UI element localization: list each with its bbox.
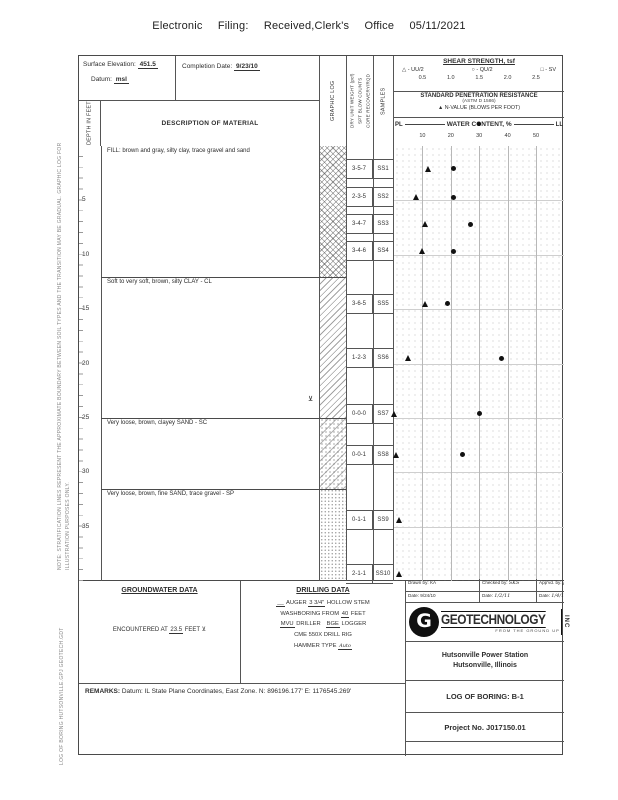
scanned-boring-log-page: Electronic Filing: Received,Clerk's Offi… bbox=[0, 0, 618, 800]
shear-strength-legend: △ - UU/2 ○ - QU/2 □ - SV bbox=[394, 65, 564, 73]
checked-by-cell: Checked by: SKS bbox=[479, 579, 536, 591]
graphic-pattern-fill bbox=[320, 146, 346, 277]
drilling-lines: __ AUGER 3 3/4" HOLLOW STEM WASHBORING F… bbox=[241, 598, 405, 652]
samples-column-label: SAMPLES bbox=[374, 56, 393, 146]
remarks-box: REMARKS: Datum: IL State Plane Coordinat… bbox=[79, 684, 406, 756]
dry-unit-line-3: CORE RECOVERY/RQD bbox=[364, 58, 372, 144]
sample-row: 3-4-6SS4 bbox=[346, 241, 393, 261]
depth-column-label: DEPTH IN FEET bbox=[79, 101, 100, 146]
n-value-marker bbox=[396, 571, 402, 577]
approved-by-cell: App'vd. by: JW bbox=[536, 579, 564, 591]
depth-tick: 20 bbox=[82, 360, 89, 367]
water-content-marker bbox=[451, 166, 456, 171]
dry-unit-line-2: SPT BLOW COUNTS bbox=[356, 58, 364, 144]
chart-gridline-v bbox=[508, 146, 509, 581]
sample-id: SS1 bbox=[373, 160, 393, 178]
shear-scale-label: 1.5 bbox=[475, 75, 483, 81]
n-value-marker bbox=[419, 248, 425, 254]
surface-elevation-line: Surface Elevation: 451.5 bbox=[83, 61, 175, 68]
legend-uu: △ - UU/2 bbox=[402, 67, 424, 73]
sheet-footer: GROUNDWATER DATA ENCOUNTERED AT 23.5 FEE… bbox=[79, 581, 564, 756]
dry-unit-column-header: DRY UNIT WEIGHT (pcf) SPT BLOW COUNTS CO… bbox=[346, 56, 373, 146]
graphic-pattern-sc bbox=[320, 418, 346, 489]
water-scale-label: 40 bbox=[505, 133, 511, 139]
blow-counts: 0-0-1 bbox=[346, 446, 373, 464]
spr-legend: ▲ N-VALUE (BLOWS PER FOOT) bbox=[394, 104, 564, 111]
depth-tick: 25 bbox=[82, 414, 89, 421]
datum-line: Datum: msl bbox=[83, 76, 175, 83]
completion-date-value: 9/23/10 bbox=[234, 63, 260, 71]
chart-plot-area bbox=[393, 146, 564, 581]
groundwater-depth-value: 23.5 bbox=[169, 627, 183, 634]
sample-row: 0-1-1SS9 bbox=[346, 510, 393, 530]
samples-column-header: SAMPLES bbox=[373, 56, 393, 146]
graphic-log-label: GRAPHIC LOG bbox=[320, 56, 346, 146]
drilling-washboring-line: WASHBORING FROM 40 FEET bbox=[241, 609, 405, 620]
water-table-icon: ⊻ bbox=[202, 627, 206, 633]
stratum-boundary-line bbox=[101, 418, 346, 419]
chart-gridline-v bbox=[479, 146, 480, 581]
boring-log-sheet: Surface Elevation: 451.5 Datum: msl Comp… bbox=[78, 55, 563, 755]
blow-counts: 0-1-1 bbox=[346, 511, 373, 529]
drilling-data-box: DRILLING DATA __ AUGER 3 3/4" HOLLOW STE… bbox=[241, 581, 406, 684]
n-value-marker bbox=[405, 355, 411, 361]
depth-column: 5101520253035 bbox=[79, 146, 101, 581]
n-value-marker bbox=[422, 301, 428, 307]
filled-triangle-icon: ▲ bbox=[438, 105, 443, 111]
shear-strength-header: SHEAR STRENGTH, tsf △ - UU/2 ○ - QU/2 □ … bbox=[394, 56, 564, 92]
water-content-marker bbox=[445, 301, 450, 306]
depth-tick: 5 bbox=[82, 196, 86, 203]
blow-counts: 3-4-7 bbox=[346, 215, 373, 233]
water-content-marker bbox=[451, 249, 456, 254]
boring-id: B-1 bbox=[512, 692, 524, 701]
drilling-hammer-line: HAMMER TYPE Auto bbox=[241, 641, 405, 652]
water-scale-label: 30 bbox=[476, 133, 482, 139]
surface-elevation-box: Surface Elevation: 451.5 Datum: msl bbox=[79, 56, 176, 101]
description-column-header: DESCRIPTION OF MATERIAL bbox=[101, 101, 319, 146]
sample-row: 0-0-0SS7 bbox=[346, 404, 393, 424]
depth-tick: 15 bbox=[82, 305, 89, 312]
project-number-box: Project No. J017150.01 bbox=[406, 713, 564, 742]
logo-text: GEOTECHNOLOGY FROM THE GROUND UP bbox=[441, 611, 560, 634]
sample-row: 3-5-7SS1 bbox=[346, 159, 393, 179]
spr-header: STANDARD PENETRATION RESISTANCE (ASTM D … bbox=[394, 92, 564, 118]
samples-area: 3-5-7SS12-3-5SS23-4-7SS33-4-6SS43-6-5SS5… bbox=[346, 146, 393, 581]
chart-gridline-v bbox=[422, 146, 423, 581]
stratum-description: FILL: brown and gray, silty clay, trace … bbox=[107, 148, 315, 155]
triangle-outline-icon: △ bbox=[402, 67, 406, 73]
site-line-2: Hutsonville, Illinois bbox=[453, 661, 517, 671]
water-content-marker bbox=[499, 356, 504, 361]
shear-scale-label: 2.5 bbox=[532, 75, 540, 81]
spr-title: STANDARD PENETRATION RESISTANCE bbox=[394, 92, 564, 99]
completion-date-box: Completion Date: 9/23/10 bbox=[176, 56, 319, 101]
stratum-description: Soft to very soft, brown, silty CLAY - C… bbox=[107, 279, 315, 286]
blow-counts: 3-5-7 bbox=[346, 160, 373, 178]
water-title-row: PL WATER CONTENT, % LL bbox=[394, 118, 564, 131]
circle-outline-icon: ○ bbox=[472, 67, 475, 73]
drilling-rig-line: CME 550X DRILL RIG bbox=[241, 630, 405, 641]
filing-header: Electronic Filing: Received,Clerk's Offi… bbox=[0, 20, 618, 32]
graphic-pattern-sp bbox=[320, 489, 346, 581]
drawn-date-cell: Date: 9/24/10 bbox=[406, 591, 479, 603]
shear-scale-label: 1.0 bbox=[447, 75, 455, 81]
boring-id-box: LOG OF BORING: B-1 bbox=[406, 681, 564, 713]
surface-elevation-value: 451.5 bbox=[138, 61, 158, 69]
water-content-header: PL WATER CONTENT, % LL 1020304050 bbox=[394, 118, 564, 145]
shear-scale-label: 0.5 bbox=[419, 75, 427, 81]
pl-line bbox=[405, 124, 445, 125]
description-column: FILL: brown and gray, silty clay, trace … bbox=[101, 146, 319, 581]
water-scale-label: 50 bbox=[533, 133, 539, 139]
water-table-icon: ⊻ bbox=[308, 396, 313, 403]
graphic-log-column bbox=[319, 146, 346, 581]
sample-row: 3-4-7SS3 bbox=[346, 214, 393, 234]
sample-row: 2-3-5SS2 bbox=[346, 187, 393, 207]
company-suffix: INC bbox=[561, 609, 569, 635]
company-name: GEOTECHNOLOGY bbox=[441, 611, 546, 629]
water-scale-label: 20 bbox=[448, 133, 454, 139]
depth-tick: 10 bbox=[82, 251, 89, 258]
stratum-boundary-line bbox=[101, 277, 346, 278]
sample-id: SS6 bbox=[373, 349, 393, 367]
remarks-text: Datum: IL State Plane Coordinates, East … bbox=[122, 688, 351, 695]
chart-gridline-v bbox=[451, 146, 452, 581]
water-scale-label: 10 bbox=[419, 133, 425, 139]
spr-legend-text: N-VALUE (BLOWS PER FOOT) bbox=[445, 105, 520, 111]
shear-scale-row: 0.51.01.52.02.5 bbox=[394, 74, 564, 86]
blow-counts: 0-0-0 bbox=[346, 405, 373, 423]
shear-scale-label: 2.0 bbox=[504, 75, 512, 81]
checked-date-cell: Date: 1/2/11 bbox=[479, 591, 536, 603]
sample-row: 0-0-1SS8 bbox=[346, 445, 393, 465]
approved-date-cell: Date: 1/4/11 bbox=[536, 591, 564, 603]
site-line-1: Hutsonville Power Station bbox=[442, 651, 528, 661]
water-content-marker bbox=[451, 195, 456, 200]
depth-tick: 30 bbox=[82, 468, 89, 475]
groundwater-title: GROUNDWATER DATA bbox=[79, 581, 240, 594]
pl-label: PL bbox=[395, 122, 403, 128]
remarks-label: REMARKS: bbox=[85, 688, 120, 695]
sample-id: SS7 bbox=[373, 405, 393, 423]
sample-row: 3-6-5SS5 bbox=[346, 294, 393, 314]
project-number: J017150.01 bbox=[486, 723, 526, 732]
company-tagline: FROM THE GROUND UP bbox=[441, 628, 560, 633]
drilling-title: DRILLING DATA bbox=[241, 581, 405, 594]
drilling-crew-line: MVU DRILLER BGE LOGGER bbox=[241, 619, 405, 630]
log-body: 5101520253035 FILL: brown and gray, silt… bbox=[79, 146, 564, 581]
stratum-description: Very loose, brown, fine SAND, trace grav… bbox=[107, 491, 315, 498]
margin-note: NOTE: STRATIFICATION LINES REPRESENT THE… bbox=[56, 140, 72, 570]
company-logo: G GEOTECHNOLOGY FROM THE GROUND UP INC bbox=[406, 603, 564, 642]
project-site-box: Hutsonville Power Station Hutsonville, I… bbox=[406, 642, 564, 681]
blow-counts: 2-3-5 bbox=[346, 188, 373, 206]
margin-file-stamp: LOG OF BORING HUTSONVILLE.GPJ GEOTECH.GD… bbox=[58, 570, 68, 765]
groundwater-data-box: GROUNDWATER DATA ENCOUNTERED AT 23.5 FEE… bbox=[79, 581, 241, 684]
stratum-boundary-line bbox=[101, 489, 346, 490]
chart-gridline-v bbox=[536, 146, 537, 581]
surface-elevation-label: Surface Elevation: bbox=[83, 61, 136, 68]
stratum-description: Very loose, brown, clayey SAND - SC bbox=[107, 420, 315, 427]
completion-date-label: Completion Date: bbox=[182, 63, 232, 70]
graphic-pattern-clay bbox=[320, 277, 346, 418]
n-value-marker bbox=[425, 166, 431, 172]
blow-counts: 3-4-6 bbox=[346, 242, 373, 260]
ll-line bbox=[514, 124, 554, 125]
dry-unit-line-1: DRY UNIT WEIGHT (pcf) bbox=[348, 58, 356, 144]
sample-id: SS5 bbox=[373, 295, 393, 313]
water-content-marker bbox=[477, 411, 482, 416]
water-content-marker bbox=[460, 452, 465, 457]
drawn-by-cell: Drawn by: KA bbox=[406, 579, 479, 591]
sample-id: SS8 bbox=[373, 446, 393, 464]
drilling-auger-line: __ AUGER 3 3/4" HOLLOW STEM bbox=[241, 598, 405, 609]
n-value-marker bbox=[396, 517, 402, 523]
signoff-table: Drawn by: KA Checked by: SKS App'vd. by:… bbox=[406, 579, 564, 603]
depth-tick: 35 bbox=[82, 523, 89, 530]
legend-qu: ○ - QU/2 bbox=[472, 67, 493, 73]
water-scale-row: 1020304050 bbox=[394, 132, 564, 144]
square-outline-icon: □ bbox=[540, 67, 543, 73]
chart-header: SHEAR STRENGTH, tsf △ - UU/2 ○ - QU/2 □ … bbox=[393, 56, 564, 146]
shear-strength-title: SHEAR STRENGTH, tsf bbox=[394, 56, 564, 65]
legend-sv: □ - SV bbox=[540, 67, 556, 73]
groundwater-encountered-line: ENCOUNTERED AT 23.5 FEET ⊻ bbox=[79, 626, 240, 633]
sheet-header: Surface Elevation: 451.5 Datum: msl Comp… bbox=[79, 56, 564, 146]
depth-column-header: DEPTH IN FEET bbox=[79, 101, 101, 146]
n-value-marker bbox=[393, 452, 399, 458]
graphic-log-column-header: GRAPHIC LOG bbox=[319, 56, 346, 146]
n-value-marker bbox=[413, 194, 419, 200]
datum-label: Datum: bbox=[91, 76, 112, 83]
n-value-marker bbox=[422, 221, 428, 227]
blow-counts: 3-6-5 bbox=[346, 295, 373, 313]
sample-id: SS2 bbox=[373, 188, 393, 206]
geotechnology-logo-icon: G bbox=[409, 607, 439, 637]
ll-label: LL bbox=[556, 122, 563, 128]
title-block-column: Drawn by: KA Checked by: SKS App'vd. by:… bbox=[406, 581, 564, 756]
sample-id: SS4 bbox=[373, 242, 393, 260]
blow-counts: 1-2-3 bbox=[346, 349, 373, 367]
sample-row: 1-2-3SS6 bbox=[346, 348, 393, 368]
water-content-marker bbox=[468, 222, 473, 227]
sample-id: SS3 bbox=[373, 215, 393, 233]
sample-id: SS9 bbox=[373, 511, 393, 529]
datum-value: msl bbox=[114, 76, 129, 84]
